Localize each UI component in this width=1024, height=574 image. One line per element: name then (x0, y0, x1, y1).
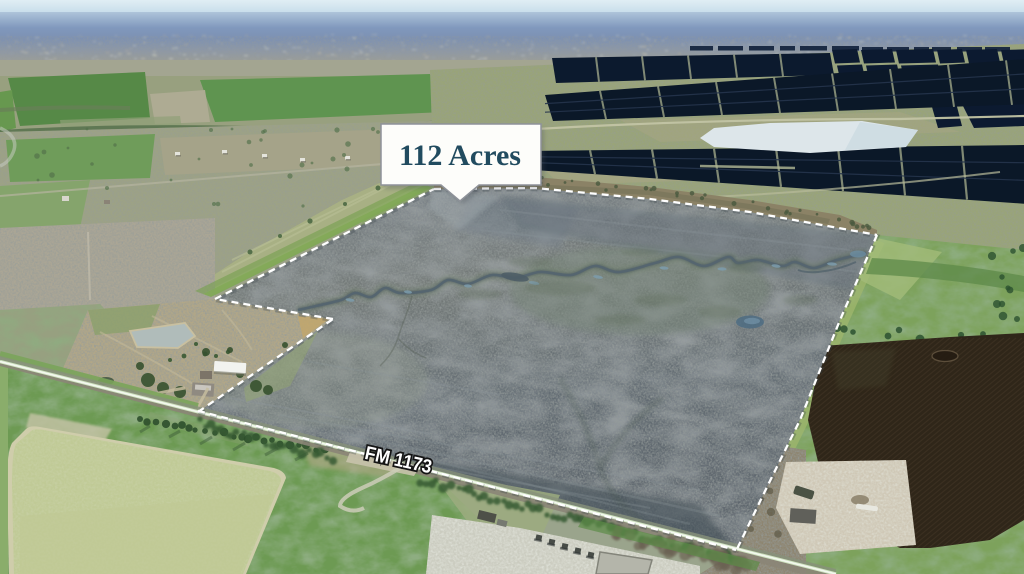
svg-text:112 Acres: 112 Acres (399, 139, 521, 172)
